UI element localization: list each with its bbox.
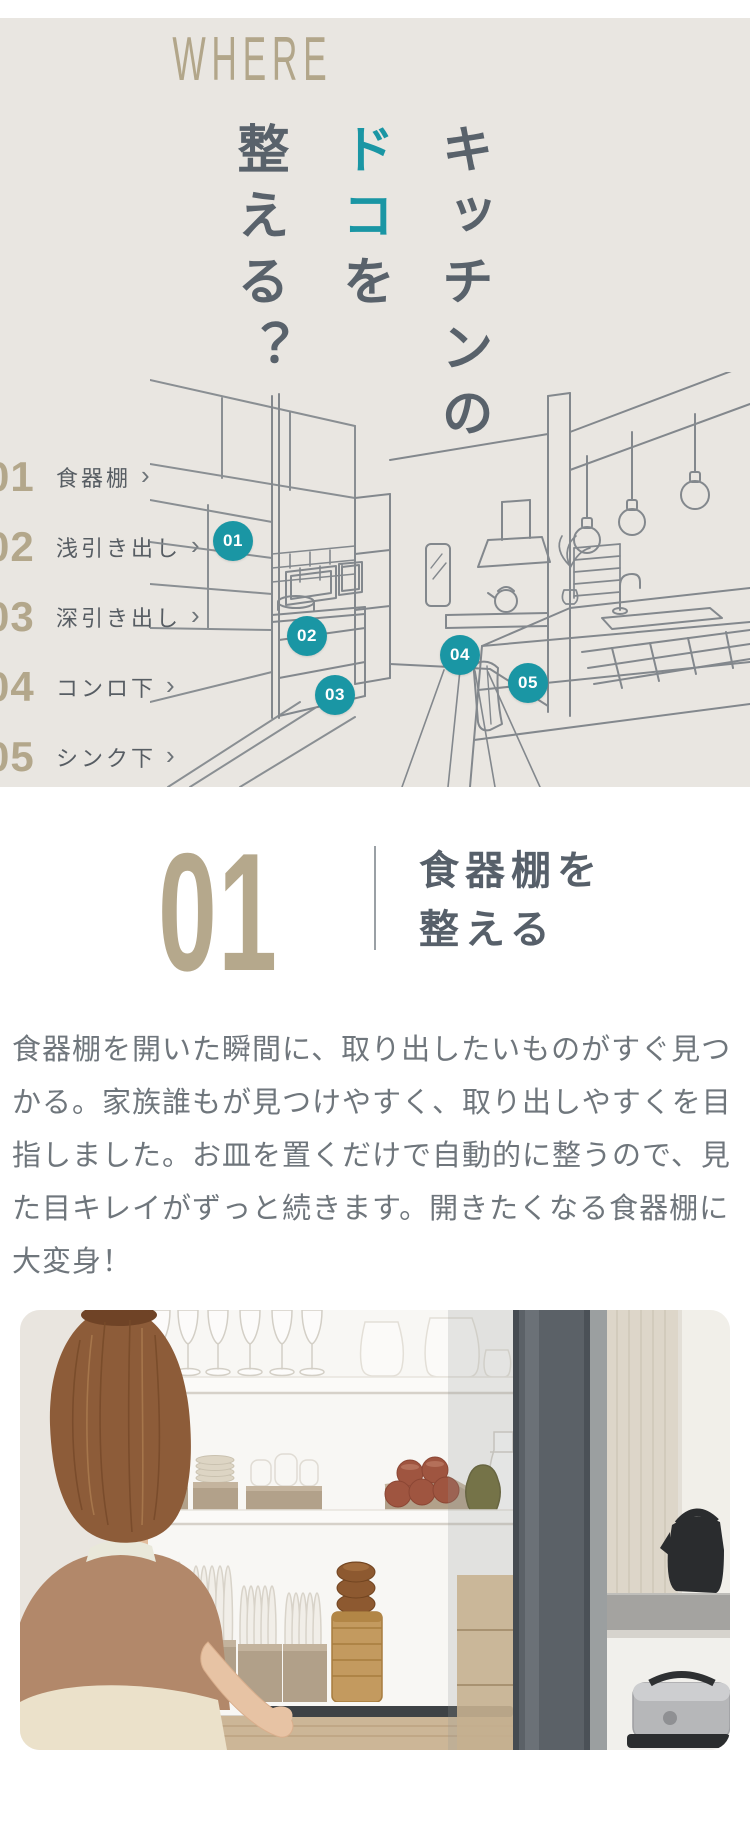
pendant-lights: [574, 414, 709, 553]
vertical-title-totonoeru: 整える？: [232, 122, 284, 386]
vertical-title-wo: を: [334, 254, 392, 320]
feature-number: 01: [158, 828, 278, 996]
menu-num: 02: [0, 523, 56, 571]
menu-num: 04: [0, 663, 56, 711]
feature-title-line2: 整える: [419, 901, 603, 960]
menu-num: 01: [0, 453, 56, 501]
rice-cooker: [627, 1675, 730, 1749]
menu-label: コンロ下: [56, 671, 156, 703]
hero-eyebrow-wrap: WHERE: [102, 26, 402, 94]
vertical-title-doko: ドコを: [337, 122, 389, 320]
menu-num: 05: [0, 733, 56, 781]
menu-label: シンク下: [56, 741, 156, 773]
feature-title-line1: 食器棚を: [419, 842, 603, 901]
sliding-door-frame: [513, 1310, 590, 1750]
title-divider: [374, 846, 376, 950]
map-badge-05: 05: [508, 663, 548, 703]
range-hood: [478, 500, 550, 567]
cupboard-photo: [20, 1310, 730, 1750]
menu-num: 03: [0, 593, 56, 641]
map-badge-04: 04: [440, 635, 480, 675]
tall-unit: [355, 494, 390, 684]
hero-eyebrow: WHERE: [172, 26, 332, 94]
chevron-right-icon: ›: [141, 462, 150, 492]
cupboard-photo-illustration: [20, 1310, 730, 1750]
wooden-bowls: [337, 1562, 375, 1614]
stone-counter: [607, 1593, 730, 1630]
menu-label: 食器棚: [56, 461, 131, 493]
map-badge-02: 02: [287, 616, 327, 656]
vertical-title-accent: ドコ: [334, 122, 392, 254]
plant-shelf: [559, 536, 620, 604]
pole: [272, 394, 279, 718]
wicker-basket: [332, 1612, 382, 1702]
hero-section: WHERE キッチンの ドコを 整える？ 01 食器棚 › 02 浅引き出し ›…: [0, 18, 750, 787]
map-badge-01: 01: [213, 521, 253, 561]
left-hutch: [150, 380, 355, 787]
feature-title: 食器棚を 整える: [419, 842, 603, 960]
feature-body-text: 食器棚を開いた瞬間に、取り出したいものがすぐ見つかる。家族誰もが見つけやすく、取…: [12, 1024, 742, 1289]
wood-drawers-behind-glass: [457, 1575, 513, 1750]
ceiling-lines: [570, 372, 750, 470]
back-counter-kettle: [446, 587, 548, 628]
kitchen-sketch-illustration: [150, 372, 750, 787]
map-badge-03: 03: [315, 675, 355, 715]
